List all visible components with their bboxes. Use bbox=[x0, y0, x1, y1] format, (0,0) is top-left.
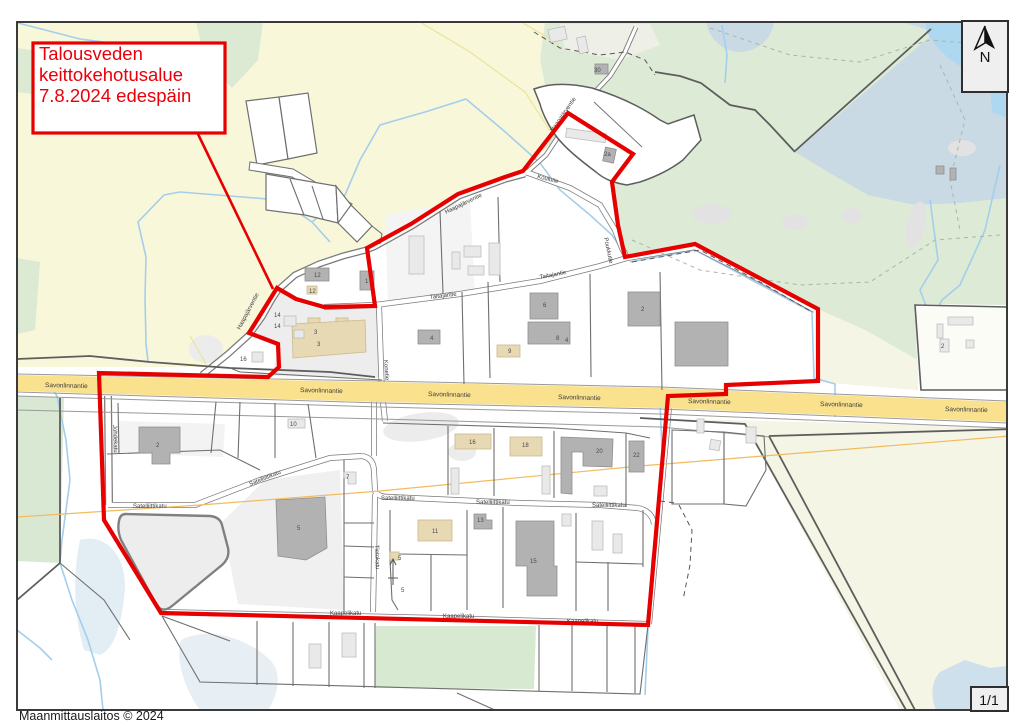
svg-text:1/1: 1/1 bbox=[979, 692, 999, 708]
svg-text:Talousveden: Talousveden bbox=[39, 43, 143, 64]
svg-text:Savonlinnantie: Savonlinnantie bbox=[688, 398, 731, 406]
svg-text:Satelliittikatu: Satelliittikatu bbox=[133, 504, 167, 510]
svg-text:22: 22 bbox=[633, 453, 640, 459]
svg-text:Satelliittikatu: Satelliittikatu bbox=[476, 500, 510, 506]
svg-text:18: 18 bbox=[522, 443, 529, 449]
svg-text:16: 16 bbox=[240, 357, 247, 363]
svg-text:7.8.2024 edespäin: 7.8.2024 edespäin bbox=[39, 85, 191, 106]
svg-text:keittokehotusalue: keittokehotusalue bbox=[39, 64, 183, 85]
svg-text:Savonlinnantie: Savonlinnantie bbox=[558, 394, 601, 402]
svg-text:N: N bbox=[980, 49, 991, 66]
svg-text:Satelliittikatu: Satelliittikatu bbox=[381, 496, 415, 502]
svg-text:Johdekatu: Johdekatu bbox=[111, 425, 118, 453]
svg-text:13: 13 bbox=[477, 518, 484, 524]
svg-text:Savonlinnantie: Savonlinnantie bbox=[300, 387, 343, 395]
svg-text:12: 12 bbox=[314, 273, 321, 279]
svg-text:14: 14 bbox=[274, 324, 281, 330]
svg-text:2a: 2a bbox=[604, 152, 611, 158]
svg-text:Savonlinnantie: Savonlinnantie bbox=[820, 401, 863, 409]
svg-text:Savonlinnantie: Savonlinnantie bbox=[945, 406, 988, 414]
svg-text:15: 15 bbox=[530, 559, 537, 565]
svg-text:10: 10 bbox=[290, 422, 297, 428]
svg-text:Satelliittikatu: Satelliittikatu bbox=[592, 503, 626, 509]
svg-text:Savonlinnantie: Savonlinnantie bbox=[45, 382, 88, 390]
svg-text:Tietokatu: Tietokatu bbox=[373, 545, 380, 570]
svg-text:Savonlinnantie: Savonlinnantie bbox=[428, 391, 471, 399]
svg-text:11: 11 bbox=[432, 529, 439, 535]
svg-text:20: 20 bbox=[596, 449, 603, 455]
svg-text:14: 14 bbox=[274, 313, 281, 319]
svg-text:12: 12 bbox=[309, 289, 316, 295]
svg-text:16: 16 bbox=[469, 440, 476, 446]
svg-text:Maanmittauslaitos © 2024: Maanmittauslaitos © 2024 bbox=[19, 709, 164, 723]
svg-text:30: 30 bbox=[594, 68, 601, 74]
